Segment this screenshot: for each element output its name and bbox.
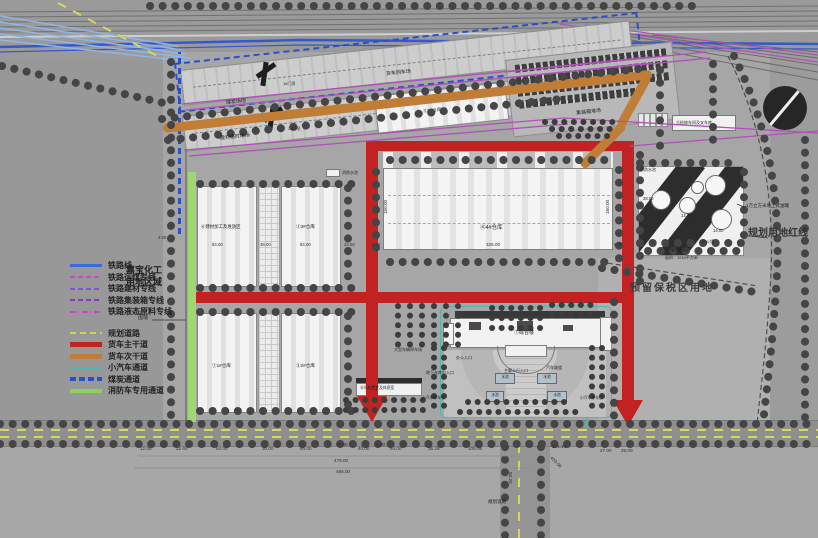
green-belt-label: 绿化隔离区 <box>670 248 690 252</box>
lower-apron-strip <box>258 313 280 413</box>
bonded-area-label: 预留保税区用地 <box>630 284 714 294</box>
dim-warehouse-mid: 38.00 <box>260 243 271 247</box>
crane-1-label: 1#门吊 <box>283 82 295 86</box>
warehouse-1-label: ①1#仓库 <box>212 364 231 369</box>
oil-tank <box>705 175 726 196</box>
warehouse-3-label: ③3#仓库 <box>296 225 315 230</box>
dim-chain-4: 84.00 <box>300 447 312 452</box>
dim-chain-1: 22.60 <box>176 447 188 452</box>
planned-road-centerline-2 <box>0 436 818 438</box>
dim-chain-10: 109.06 <box>468 447 482 452</box>
dim-chain-9: 36.26 <box>428 447 440 452</box>
dim-chain-6: 40.00 <box>358 447 370 452</box>
legend-label: 煤炭通道 <box>108 374 140 385</box>
truck-main-swatch <box>70 342 102 347</box>
legend-row-truck-main: 货车主干道 <box>70 339 190 351</box>
planned-road-swatch <box>70 332 102 334</box>
dim-right-3: 25.00 <box>621 449 633 454</box>
coal-channel-swatch <box>70 377 102 381</box>
material-area-label: ⑥建材加工及堆放区 <box>201 225 241 229</box>
dim-chain-2: 84.00 <box>216 447 228 452</box>
truck-main-road-center-vertical <box>366 141 378 399</box>
dim-warehouse-left: 84.00 <box>212 243 223 247</box>
dim-total-2: 488.00 <box>336 470 350 475</box>
dim-right-1: 101.18 <box>552 445 566 450</box>
north-compass <box>763 86 807 130</box>
dim-total-1: 478.00 <box>334 459 348 464</box>
tank-note-label: 1万立方米地上式油罐 <box>746 204 789 209</box>
south-road-label: 规划道路 <box>488 500 506 505</box>
tank-dim-width: 28.00 <box>643 197 653 201</box>
south-vertical-road <box>500 447 550 538</box>
site-plan-canvas: 180.00 ⑤5#仓库 集装箱堆场 28.00 14.00 14. <box>0 0 818 538</box>
dim-wh4-margin-left: 6.00 <box>372 243 380 247</box>
dim-chain-8: 54.00 <box>390 447 402 452</box>
legend-row-truck-secondary: 货车次干道 <box>70 351 190 363</box>
dim-chain-7: 1.00 <box>376 443 385 448</box>
truck-main-road-middle <box>196 292 634 303</box>
dim-left-gap: 4.00 <box>158 236 166 240</box>
complex-label: ⑦综合楼 <box>514 331 534 336</box>
jiabao-zone-label-line1: 嘉宝化工 <box>126 266 162 275</box>
fire-pool-boxes <box>326 169 340 177</box>
area-bottom-margin <box>0 447 818 538</box>
liquid-rail-swatch <box>70 311 102 313</box>
legend-row-coal-channel: 煤炭通道 <box>70 374 190 386</box>
oil-tank <box>711 209 732 230</box>
pedestrian-entry-label: 主要人行入口 <box>504 369 528 373</box>
warehouse-4-bay-line <box>388 223 610 224</box>
legend-row-car-lane: 小汽车通道 <box>70 362 190 374</box>
pool-label: 水池 <box>487 392 503 398</box>
office-entry-label: 办公入口 <box>456 356 472 360</box>
water-pool: 水池 <box>486 391 504 402</box>
warehouse-4-label: ④4#仓库 <box>480 226 503 232</box>
car-lane-stub <box>586 417 588 427</box>
warehouse-2-label: ②2#仓库 <box>296 364 315 369</box>
railway-line-swatch <box>70 264 102 267</box>
dim-south-road-width: 50.20 <box>507 472 512 484</box>
warehouse-3-building <box>281 186 341 287</box>
water-pool: 水池 <box>547 391 567 402</box>
car-lane-stub <box>463 417 465 427</box>
parking-small-west-label: 小汽车停车位 <box>422 397 445 401</box>
legend-row-fire-lane: 消防车专用通道 <box>70 385 190 397</box>
oil-tank <box>679 197 696 214</box>
legend-row-container-rail: 铁路集装箱专线 <box>70 295 190 307</box>
coal-rail-swatch <box>70 276 102 278</box>
material-processing-area-building <box>197 186 257 287</box>
parking-small-east-label: 小汽车停车位 <box>580 397 603 401</box>
dim-warehouse-right: 84.00 <box>300 243 311 247</box>
tank-dim-diameter: 14.00 <box>713 229 723 233</box>
legend-label: 小汽车通道 <box>108 362 148 373</box>
compass-needle <box>769 90 800 126</box>
container-rail-swatch <box>70 299 102 301</box>
legend-row-liquid-rail: 铁路液态原料专线 <box>70 306 190 318</box>
tank-farm: 28.00 14.00 14.00 <box>638 166 744 256</box>
garage-entry-label: 地下车库出入口 <box>426 371 454 375</box>
shed-row <box>638 113 668 127</box>
truck-secondary-swatch <box>70 354 102 359</box>
planned-road-centerline-south <box>518 447 520 538</box>
truck-main-road-east-vertical <box>622 141 634 403</box>
dim-right-2: 27.00 <box>600 449 612 454</box>
warehouse-4-building <box>383 168 613 250</box>
car-lane-loop <box>440 306 612 418</box>
crane-2-label: 2#门吊 <box>288 127 300 131</box>
legend-row-planned-road: 规划道路 <box>70 328 190 340</box>
fence-label: 围墙 <box>138 316 148 321</box>
truck-road-arrow-east <box>613 400 643 426</box>
upper-apron-strip <box>258 186 280 287</box>
warehouse-5-label: ⑤5#仓库 <box>423 108 442 114</box>
driver-building-label: ⑧司机食堂及休息室 <box>360 387 394 391</box>
legend-label: 货车主干道 <box>108 339 148 350</box>
oil-tank <box>651 190 671 210</box>
parking-large-label: 大型车辆停车场 <box>394 348 422 352</box>
green-belt-area-label: 面积：1210平方米 <box>665 256 698 260</box>
pool-label: 水池 <box>496 374 514 380</box>
oil-tank <box>691 181 704 194</box>
dim-wh4-side-left: 150.00 <box>384 200 389 214</box>
legend-label: 规划道路 <box>108 328 140 339</box>
jiabao-zone-label-line2: 用地区域 <box>126 278 162 287</box>
planned-road-centerline-1 <box>0 429 818 431</box>
car-lane-swatch <box>70 367 102 369</box>
warehouse-4-apron <box>383 152 613 168</box>
tank-dim-diameter: 14.00 <box>681 214 691 218</box>
pool-label: 水池 <box>538 374 556 380</box>
fire-lane-swatch <box>70 389 102 393</box>
dim-wh4-margin-right: 6.00 <box>614 243 622 247</box>
water-pool: 水池 <box>495 373 515 384</box>
coal-rail-left-spur <box>178 52 181 234</box>
legend-label: 消防车专用通道 <box>108 385 164 396</box>
pool-label: 水池 <box>548 392 566 398</box>
dim-chain-3: 30.00 <box>262 447 274 452</box>
legend-label: 铁路集装箱专线 <box>108 295 164 306</box>
legend-label: 货车次干道 <box>108 351 148 362</box>
dim-wh4-side-right: 150.00 <box>606 200 611 214</box>
container-yard-label: 集装箱堆场 <box>576 109 601 117</box>
car-ramp-label: 汽车坡道 <box>546 366 562 370</box>
red-line-label: 规划用地红线 <box>748 229 808 239</box>
truck-road-arrow-center <box>357 396 387 422</box>
firewall-label: 防火墙 <box>702 240 714 244</box>
fire-pool-west-label: 消防水池 <box>342 171 358 175</box>
fire-pool-east-label: 消防水池 <box>640 168 656 172</box>
dim-wh4-length: 325.00 <box>486 243 500 248</box>
dim-chain-0: 12.00 <box>140 447 152 452</box>
main-road-band <box>0 420 818 447</box>
water-pool: 水池 <box>537 373 557 384</box>
dim-chain-5: 15.00 <box>336 443 348 448</box>
workshop-label: ⑪检修车间及叉车库 <box>676 121 712 125</box>
warehouse-4-bay-line <box>388 195 610 196</box>
dim-warehouse-edge: 22.50 <box>344 243 355 247</box>
material-rail-swatch <box>70 288 102 290</box>
